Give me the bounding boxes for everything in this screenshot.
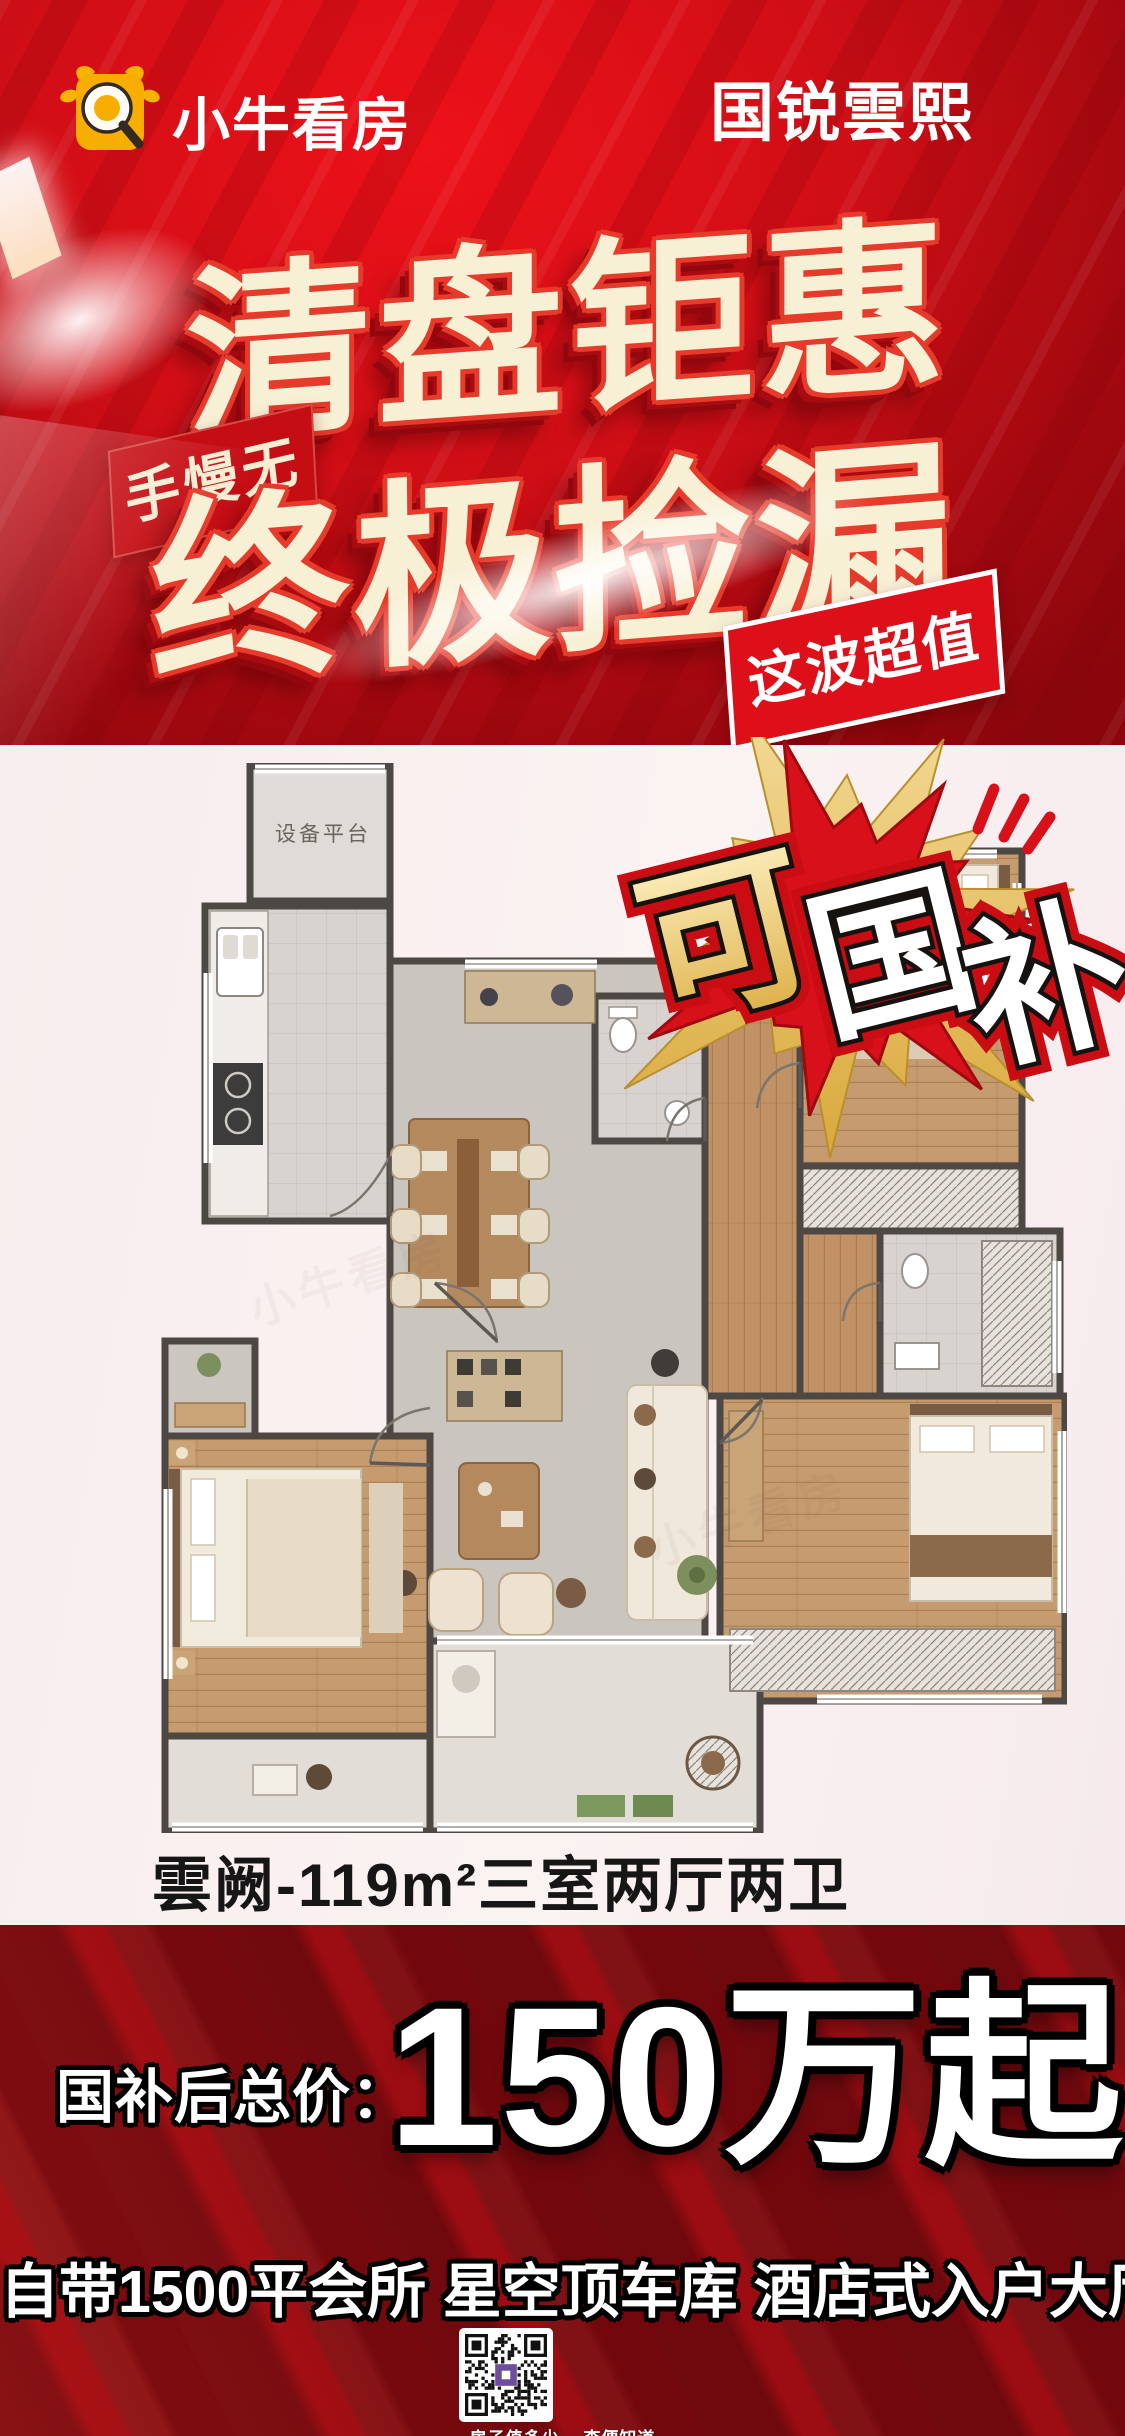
promo-poster: 小牛看房 国锐雲熙 清盘钜惠 手慢无 终极捡漏 这波超值 [0, 0, 1125, 2436]
brand-name: 小牛看房 [172, 78, 412, 162]
equipment-platform-label: 设备平台 [275, 823, 371, 846]
footer-headline: 自带1500平会所 星空顶车库 酒店式入户大厅 [0, 2244, 1125, 2329]
price-label: 国补后总价： [56, 2050, 410, 2134]
project-title: 国锐雲熙 [710, 62, 974, 154]
price-value: 150万起 [388, 1978, 1124, 2176]
exclaim-ticks [978, 789, 1050, 849]
corridor-extension [800, 1231, 880, 1396]
qr-caption: 房子值多少 一查便知道 [0, 2424, 1125, 2436]
qr-code-image [465, 2334, 547, 2416]
floorplan-section: 设备平台 小牛看房 小牛看房 可 国 [0, 745, 1125, 1925]
unit-caption: 雲阙-119m²三室两厅两卫 [152, 1837, 850, 1924]
qr-code [459, 2328, 553, 2422]
subsidy-burst-badge: 可 国 补 可 国 补 [592, 737, 1125, 1207]
value-badge-label: 这波超值 [745, 607, 984, 713]
hero-section: 小牛看房 国锐雲熙 清盘钜惠 手慢无 终极捡漏 这波超值 [0, 0, 1125, 745]
bull-magnifier-logo-icon [60, 60, 160, 160]
